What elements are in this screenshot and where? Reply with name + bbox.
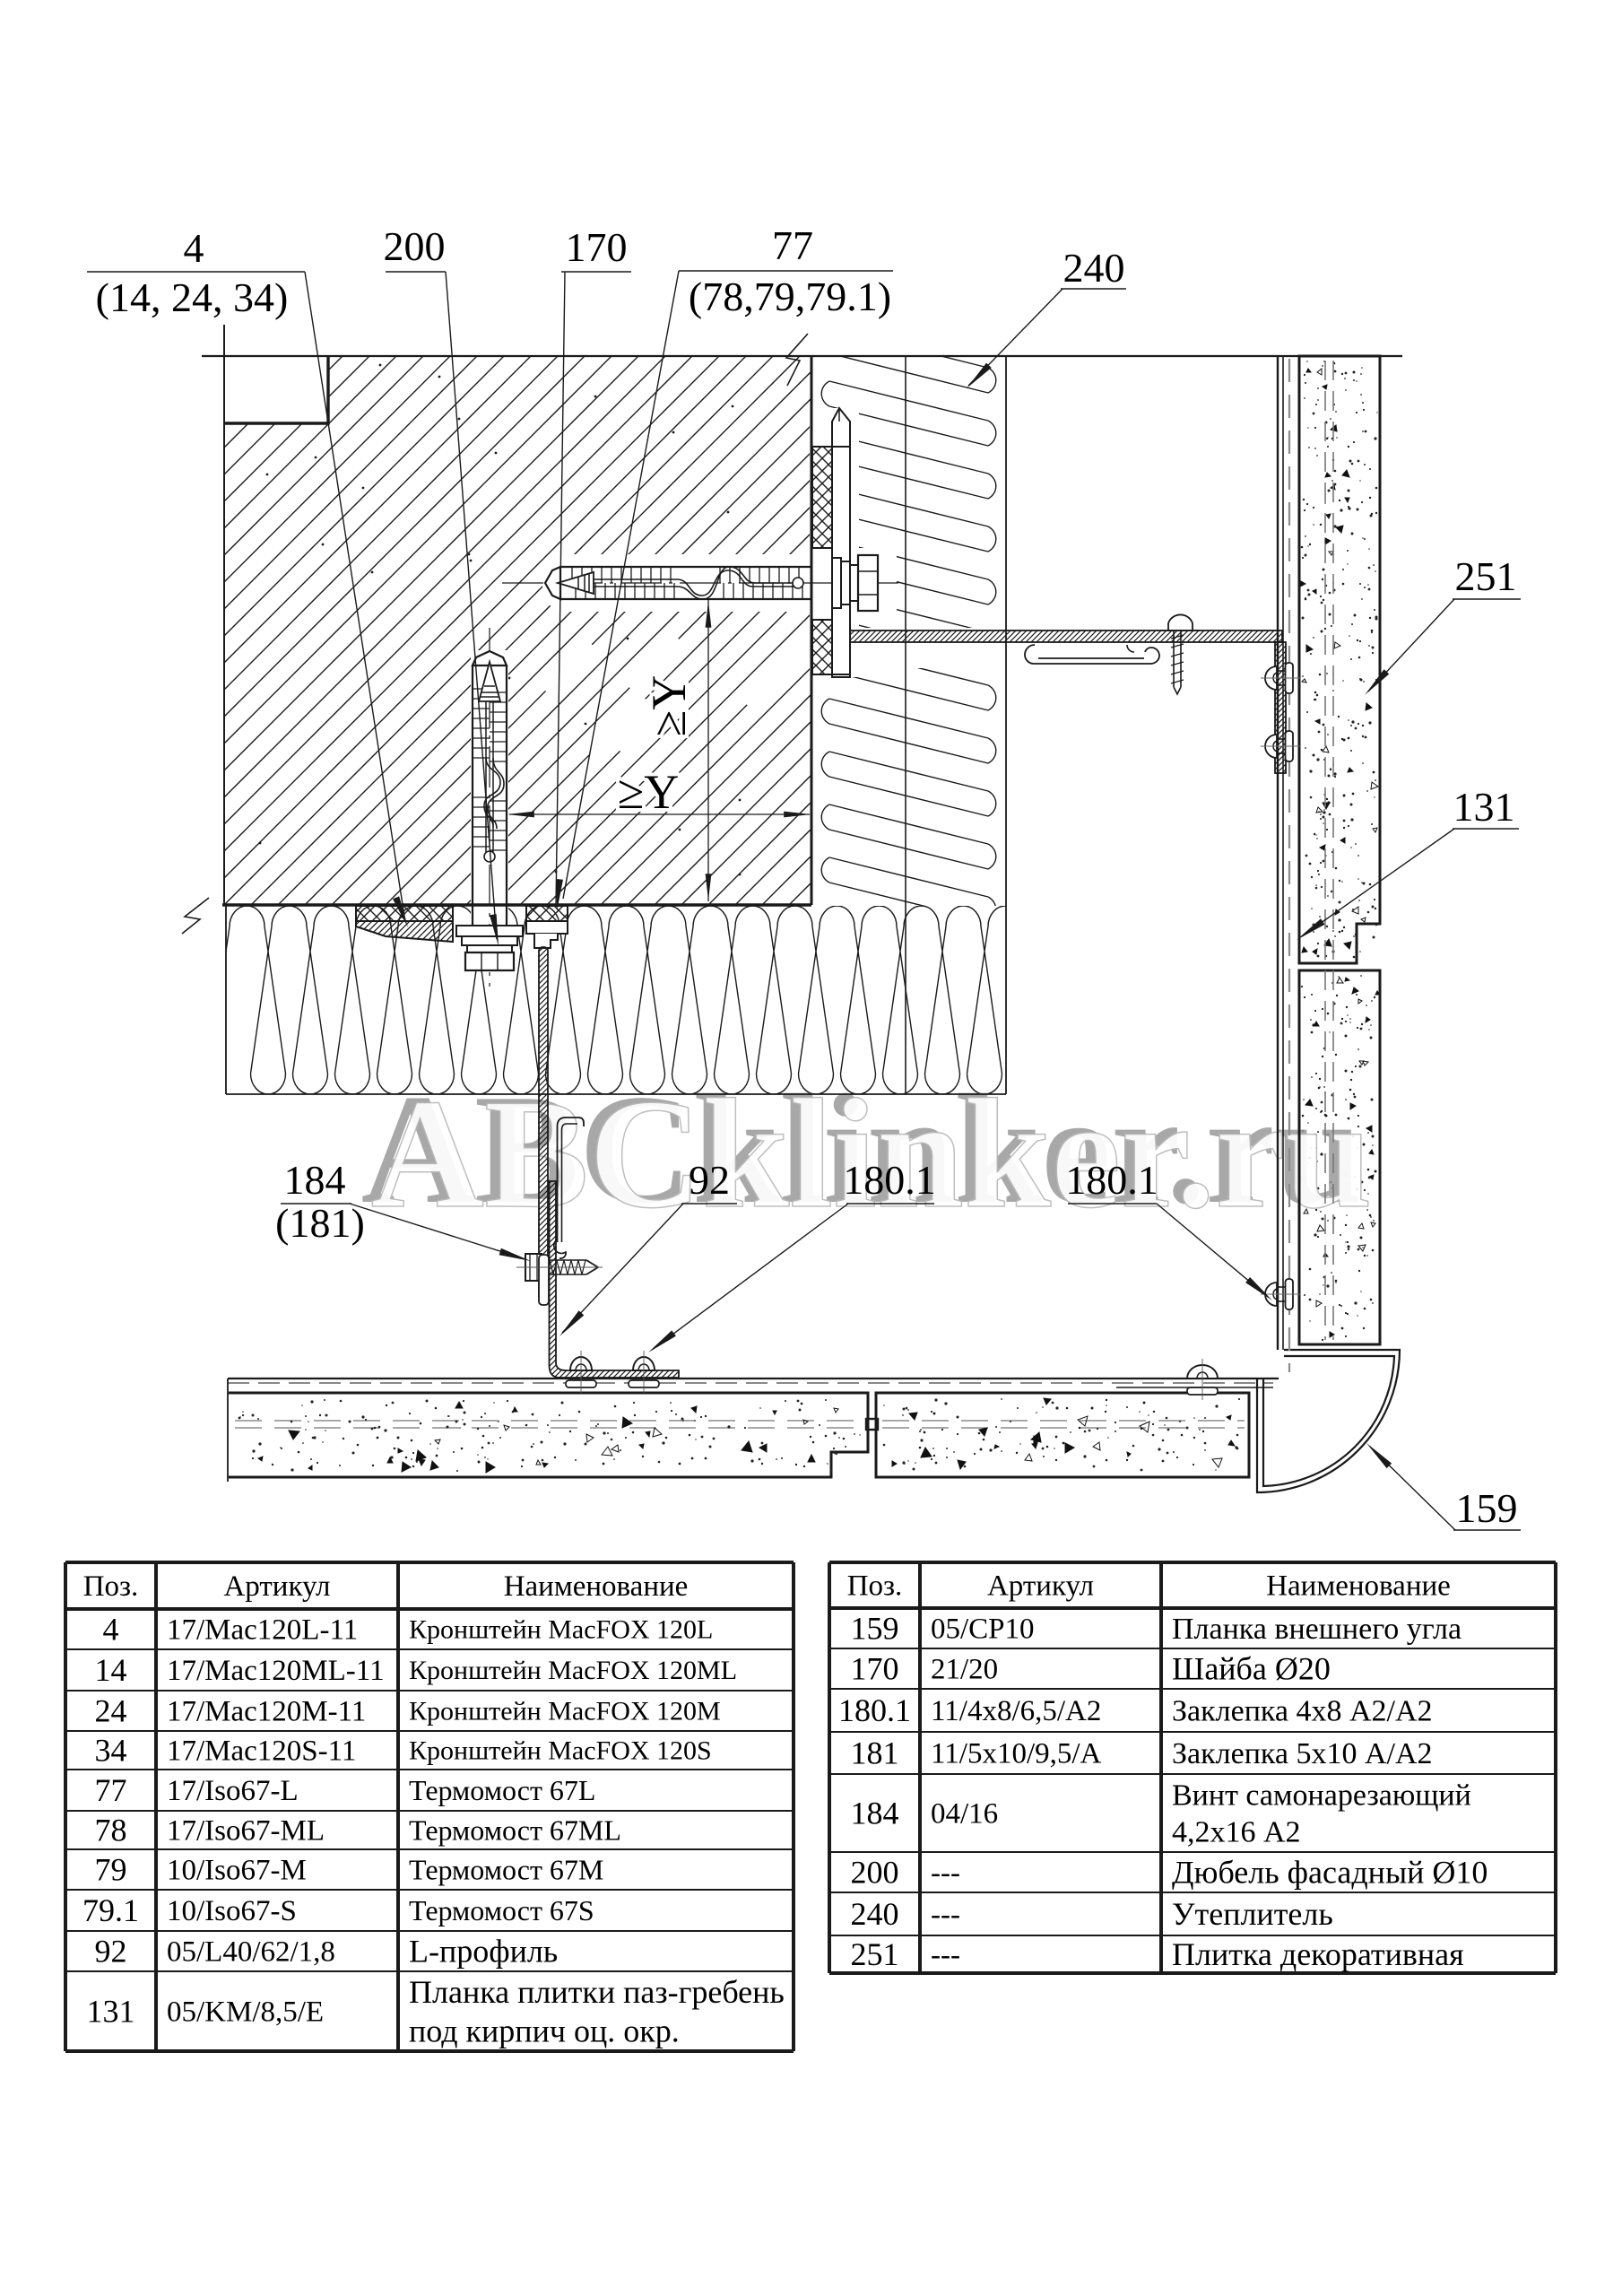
svg-text:180.1: 180.1 [1065,1157,1158,1203]
svg-text:Термомост 67S: Термомост 67S [409,1894,594,1926]
svg-text:79: 79 [95,1852,127,1888]
svg-text:Артикул: Артикул [223,1570,330,1603]
svg-text:Шайба Ø20: Шайба Ø20 [1172,1651,1331,1687]
svg-text:17/Mac120M-11: 17/Mac120M-11 [167,1696,366,1728]
svg-text:251: 251 [1455,553,1517,599]
svg-text:17/Iso67-ML: 17/Iso67-ML [167,1815,325,1848]
svg-text:14: 14 [95,1652,127,1688]
svg-text:Кронштейн MacFOX 120ML: Кронштейн MacFOX 120ML [409,1656,737,1685]
svg-text:05/KM/8,5/E: 05/KM/8,5/E [167,1996,324,2029]
svg-text:240: 240 [851,1896,899,1932]
svg-text:---: --- [931,1857,960,1890]
svg-text:4: 4 [103,1612,119,1648]
svg-text:Артикул: Артикул [987,1570,1094,1603]
svg-text:159: 159 [1456,1485,1518,1531]
svg-text:Поз.: Поз. [83,1570,139,1603]
svg-text:24: 24 [95,1693,127,1729]
svg-text:92: 92 [689,1157,730,1203]
svg-text:4,2x16 А2: 4,2x16 А2 [1172,1815,1301,1848]
svg-text:Винт самонарезающий: Винт самонарезающий [1172,1779,1471,1813]
svg-text:Термомост 67L: Термомост 67L [409,1774,595,1806]
svg-text:Планка внешнего угла: Планка внешнего угла [1172,1613,1462,1646]
svg-text:200: 200 [384,223,446,269]
svg-text:4: 4 [184,225,204,271]
svg-text:Плитка декоративная: Плитка декоративная [1172,1936,1464,1972]
svg-text:05/L40/62/1,8: 05/L40/62/1,8 [167,1936,335,1969]
svg-text:Кронштейн MacFOX 120M: Кронштейн MacFOX 120M [409,1697,721,1726]
svg-text:17/Iso67-L: 17/Iso67-L [167,1775,299,1807]
svg-text:181: 181 [851,1735,899,1771]
svg-text:Заклепка 5x10 А/А2: Заклепка 5x10 А/А2 [1172,1737,1433,1770]
svg-text:77: 77 [95,1772,127,1808]
svg-text:11/5x10/9,5/A: 11/5x10/9,5/A [931,1738,1102,1770]
svg-text:Планка плитки паз-гребень: Планка плитки паз-гребень [409,1974,785,2010]
svg-text:159: 159 [851,1611,899,1647]
svg-text:10/Iso67-S: 10/Iso67-S [167,1895,297,1927]
svg-text:11/4x8/6,5/A2: 11/4x8/6,5/A2 [931,1695,1101,1727]
svg-text:Термомост 67M: Термомост 67M [409,1853,603,1885]
svg-text:(14, 24, 34): (14, 24, 34) [96,274,289,320]
svg-text:(181): (181) [275,1200,365,1246]
svg-text:Термомост 67ML: Термомост 67ML [409,1813,621,1846]
svg-text:L-профиль: L-профиль [409,1934,558,1970]
svg-text:180.1: 180.1 [843,1157,936,1203]
svg-text:77: 77 [772,222,813,268]
svg-text:79.1: 79.1 [82,1892,139,1928]
svg-text:≥Y: ≥Y [618,765,680,819]
svg-text:Утеплитель: Утеплитель [1172,1896,1333,1932]
svg-text:05/CP10: 05/CP10 [931,1613,1035,1646]
svg-text:---: --- [931,1939,960,1971]
svg-text:под кирпич оц. окр.: под кирпич оц. окр. [409,2013,680,2048]
svg-text:04/16: 04/16 [931,1798,998,1831]
svg-text:10/Iso67-M: 10/Iso67-M [167,1855,307,1887]
svg-text:131: 131 [1453,784,1515,830]
svg-text:200: 200 [851,1855,899,1891]
svg-text:Наименование: Наименование [1266,1570,1451,1603]
svg-text:92: 92 [95,1934,127,1970]
svg-text:Кронштейн MacFOX 120S: Кронштейн MacFOX 120S [409,1736,712,1766]
svg-text:21/20: 21/20 [931,1654,998,1686]
svg-text:Поз.: Поз. [847,1570,903,1603]
svg-text:(78,79,79.1): (78,79,79.1) [689,274,891,319]
svg-text:Кронштейн MacFOX 120L: Кронштейн MacFOX 120L [409,1615,713,1645]
svg-text:Дюбель фасадный Ø10: Дюбель фасадный Ø10 [1172,1855,1488,1891]
svg-text:34: 34 [95,1733,127,1769]
svg-text:184: 184 [284,1157,346,1203]
svg-text:240: 240 [1063,245,1125,291]
svg-text:170: 170 [851,1651,899,1687]
svg-text:78: 78 [95,1813,127,1848]
svg-text:Наименование: Наименование [504,1570,689,1603]
svg-text:170: 170 [566,224,628,270]
svg-text:---: --- [931,1899,960,1931]
svg-text:251: 251 [851,1936,899,1972]
svg-text:184: 184 [851,1796,899,1831]
svg-text:131: 131 [87,1994,135,2030]
svg-text:Заклепка 4x8 А2/А2: Заклепка 4x8 А2/А2 [1172,1695,1433,1728]
svg-text:ABCklinker.ru: ABCklinker.ru [371,1066,1373,1240]
svg-text:≥Y: ≥Y [642,675,696,737]
svg-text:17/Mac120L-11: 17/Mac120L-11 [167,1614,358,1647]
svg-text:17/Mac120ML-11: 17/Mac120ML-11 [167,1655,385,1687]
svg-text:180.1: 180.1 [838,1692,911,1728]
svg-text:17/Mac120S-11: 17/Mac120S-11 [167,1735,356,1768]
